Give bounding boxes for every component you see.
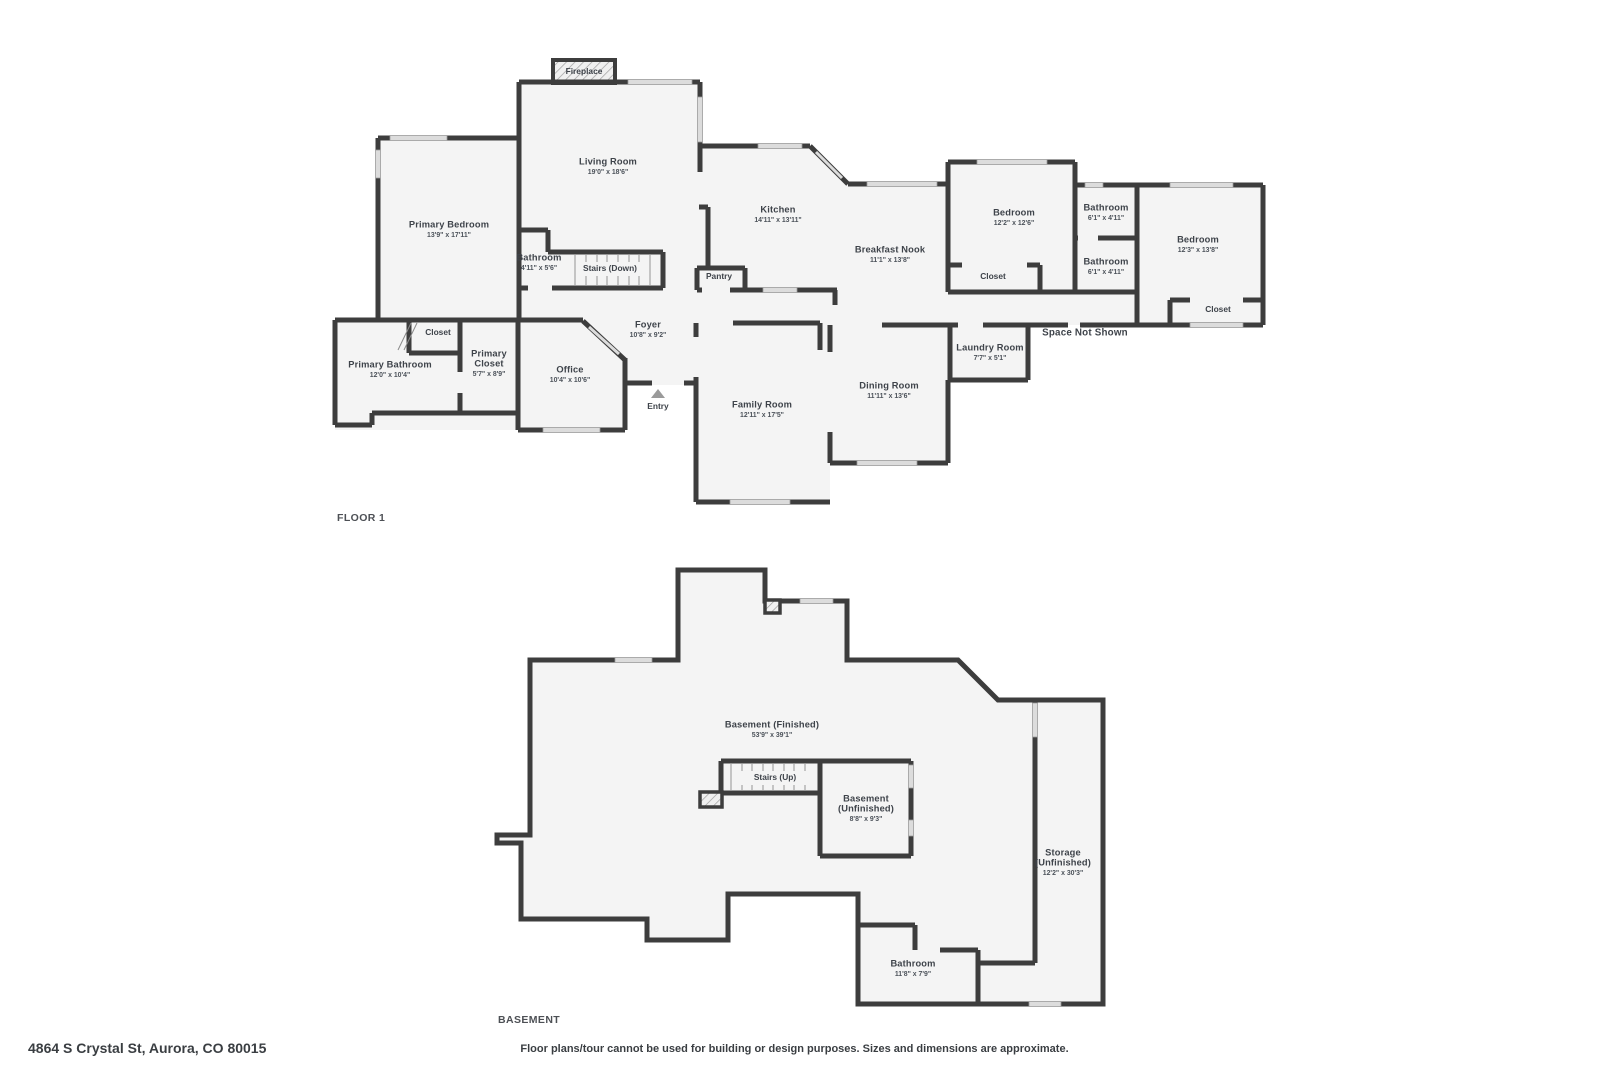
room-label: 11'8" x 7'9" [895, 971, 931, 978]
room-label: Laundry Room [956, 342, 1023, 352]
room-label: Primary Bedroom [409, 219, 489, 229]
room-label: Dining Room [859, 380, 919, 390]
room-label: 13'9" x 17'11" [427, 232, 471, 239]
basement-plan: Basement (Finished)53'9" x 39'1"Stairs (… [497, 570, 1103, 1007]
room-label: 12'2" x 30'3" [1043, 870, 1083, 877]
basement-title: BASEMENT [498, 1014, 560, 1026]
room-label: Family Room [732, 399, 792, 409]
floor-plan-page: FireplaceLiving Room19'0" x 18'6"Primary… [0, 0, 1600, 1067]
room-label: Closet [1205, 304, 1231, 314]
room-label: 19'0" x 18'6" [588, 169, 628, 176]
room-label: Bathroom [516, 252, 561, 262]
room-label: 12'0" x 10'4" [370, 372, 410, 379]
room-label: Space Not Shown [1042, 328, 1128, 339]
room-label: 11'11" x 13'6" [867, 393, 911, 400]
room-label: 10'8" x 9'2" [630, 332, 667, 339]
room-label: (Unfinished) [838, 803, 894, 813]
entry-arrow-icon [651, 389, 665, 398]
room-label: 7'7" x 5'1" [974, 355, 1007, 362]
room-label: Entry [647, 401, 669, 411]
room-label: 53'9" x 39'1" [752, 732, 792, 739]
room-label: Bathroom [890, 958, 935, 968]
property-address: 4864 S Crystal St, Aurora, CO 80015 [28, 1040, 266, 1056]
room-label: Bedroom [1177, 234, 1219, 244]
room-label: 5'7" x 8'9" [473, 371, 506, 378]
room-label: Closet [474, 358, 503, 368]
floor1-plan: FireplaceLiving Room19'0" x 18'6"Primary… [335, 60, 1263, 505]
room-label: 4'11" x 5'6" [521, 265, 557, 272]
room-label: Office [556, 364, 583, 374]
room-label: 6'1" x 4'11" [1088, 269, 1124, 276]
disclaimer-text: Floor plans/tour cannot be used for buil… [520, 1043, 1068, 1055]
floor1-title: FLOOR 1 [337, 512, 385, 524]
room-label: 12'11" x 17'5" [740, 412, 784, 419]
room-label: Stairs (Up) [754, 772, 797, 782]
room-label: Breakfast Nook [855, 244, 926, 254]
room-label: 11'1" x 13'8" [870, 257, 910, 264]
room-label: Foyer [635, 319, 661, 329]
room-label: Stairs (Down) [583, 263, 637, 273]
room-label: 6'1" x 4'11" [1088, 215, 1124, 222]
room-label: Pantry [706, 271, 732, 281]
room-label: Bedroom [993, 207, 1035, 217]
room-label: Bathroom [1083, 256, 1128, 266]
room-label: 14'11" x 13'11" [754, 217, 801, 224]
room-label: Kitchen [760, 204, 795, 214]
room-label: Primary [471, 348, 507, 358]
room-label: Bathroom [1083, 202, 1128, 212]
floor-plan-canvas: FireplaceLiving Room19'0" x 18'6"Primary… [0, 0, 1600, 1067]
room-label: Basement (Finished) [725, 719, 819, 729]
room-label: 10'4" x 10'6" [550, 377, 590, 384]
room-label: Living Room [579, 156, 637, 166]
room-label: 8'8" x 9'3" [850, 816, 883, 823]
room-label: Closet [980, 271, 1006, 281]
room-label: Storage [1045, 847, 1081, 857]
room-label: 12'3" x 13'8" [1178, 247, 1218, 254]
room-label: (Unfinished) [1035, 857, 1091, 867]
room-label: Fireplace [566, 66, 603, 76]
room-label: Primary Bathroom [348, 359, 432, 369]
support-post [765, 600, 780, 613]
room-label: 12'2" x 12'6" [994, 220, 1034, 227]
room-label: Basement [843, 793, 889, 803]
support-post [700, 792, 722, 807]
room-label: Closet [425, 327, 451, 337]
